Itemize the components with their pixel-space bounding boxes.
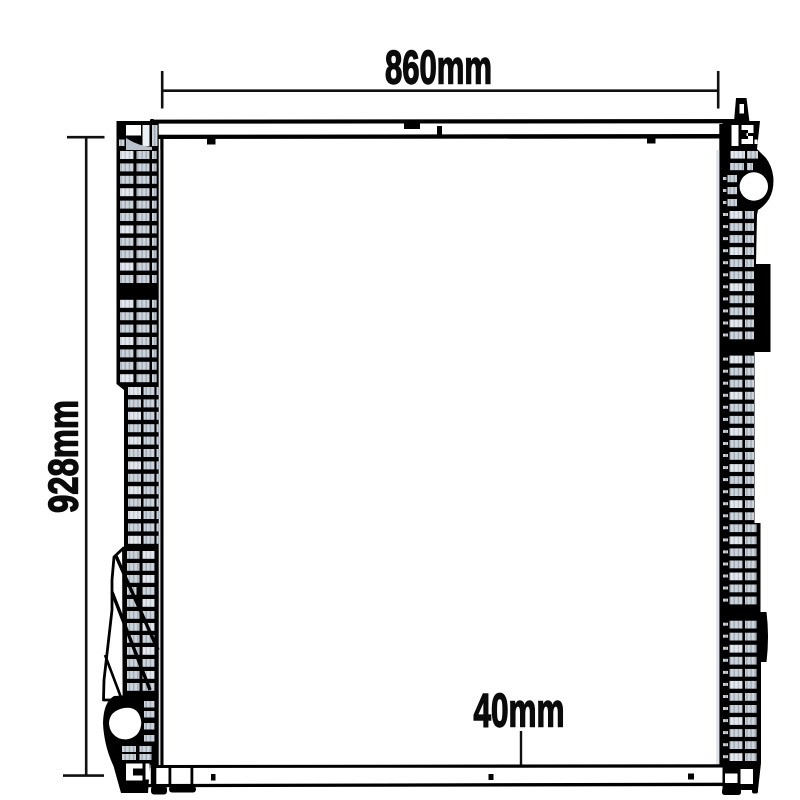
svg-text:40mm: 40mm [474, 684, 565, 737]
svg-text:928mm: 928mm [40, 400, 87, 513]
svg-text:860mm: 860mm [385, 41, 492, 94]
